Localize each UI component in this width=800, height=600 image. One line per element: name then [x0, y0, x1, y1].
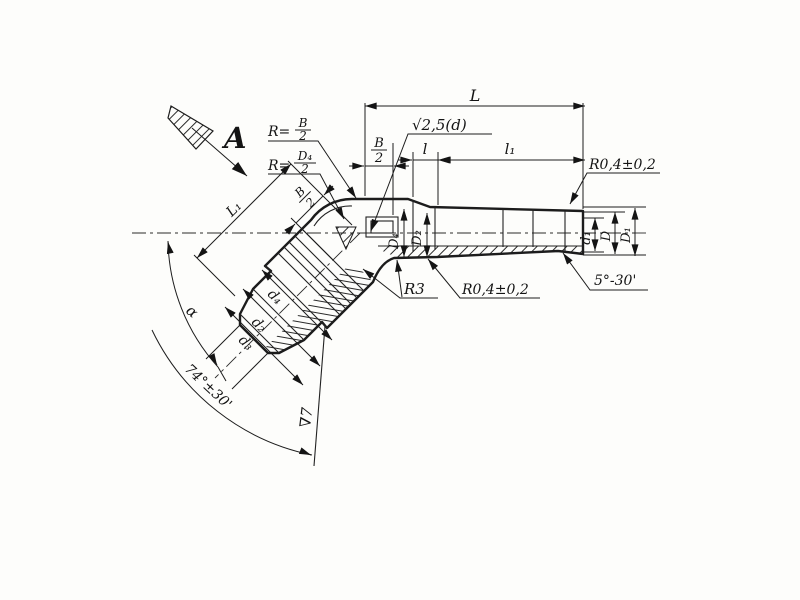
dim-l-label: l — [423, 140, 428, 158]
bend-radius-inner-num: D₄ — [297, 149, 313, 163]
cone-surface-extension-line — [314, 326, 325, 466]
technical-drawing: A R= B 2 R= D₄ 2 √2,5(d) L B 2 l l₁ R0,4… — [0, 0, 800, 600]
drawing-sheet: A R= B 2 R= D₄ 2 √2,5(d) L B 2 l l₁ R0,4… — [0, 0, 800, 600]
wall-section-hatch-branch — [264, 265, 373, 353]
fillet-top-right-label: R0,4±0,2 — [588, 157, 656, 173]
bend-radius-inner-den: 2 — [300, 162, 309, 176]
fillet-bottom-label: R0,4±0,2 — [461, 282, 529, 298]
bend-radius-outer-prefix: R= — [267, 124, 290, 140]
dim-D-label: D — [599, 230, 614, 242]
dim-L1-label: L₁ — [223, 198, 246, 221]
dim-B2-num: B — [373, 136, 384, 151]
bend-radius-inner-prefix: R= — [267, 158, 290, 174]
cone-angle-label: 74°±30' — [181, 361, 234, 412]
bend-inner-wall-arc — [314, 206, 352, 226]
leader-R3-b — [397, 260, 402, 297]
bend-angle-tick — [218, 367, 226, 381]
bend-radius-outer-num: B — [298, 116, 308, 130]
fillet-R3-label: R3 — [403, 280, 425, 298]
bend-radius-outer-den: 2 — [298, 129, 307, 143]
bend-core-hatch-triangle — [336, 227, 356, 249]
view-direction-label: A — [221, 121, 247, 155]
dim-branch-B2-den: 2 — [302, 195, 318, 211]
roughness-bore-label: √2,5(d) — [412, 116, 467, 134]
dim-d1-label: d₁ — [579, 231, 594, 245]
dim-L-label: L — [469, 86, 481, 105]
dim-D1-label: D₁ — [619, 227, 634, 244]
leader-roughness-bore — [371, 134, 492, 231]
view-direction-arrow: A — [168, 106, 247, 176]
dim-d4-label: d₄ — [264, 286, 286, 308]
dim-l1-label: l₁ — [505, 140, 516, 158]
dim-B2-den: 2 — [374, 151, 383, 166]
view-arrow-fletch — [168, 106, 213, 149]
surface-finish-label: ∇7 — [296, 406, 316, 429]
dim-D4-label: D₄ — [387, 233, 402, 250]
dim-D2-label: D₂ — [410, 230, 425, 247]
dim-L1-line — [197, 164, 291, 258]
taper-angle-label: 5°-30' — [594, 273, 636, 289]
dim-branch-B2-fraction: B 2 — [289, 181, 321, 213]
dim-branch-B2-arrow-dn — [286, 224, 295, 233]
